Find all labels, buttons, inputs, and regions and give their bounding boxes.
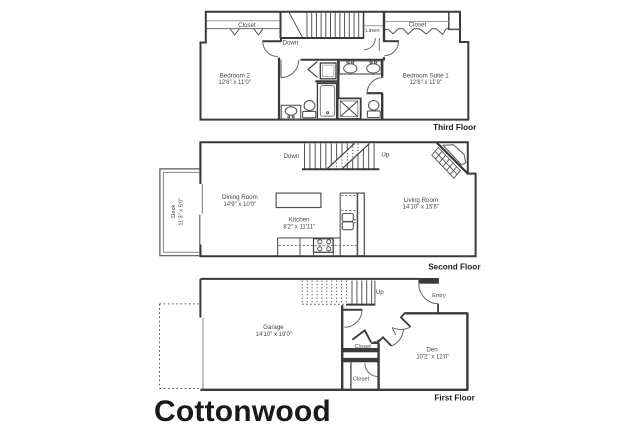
- svg-text:Bedroom 2: Bedroom 2: [220, 72, 251, 79]
- svg-text:11'3" x 5'0": 11'3" x 5'0": [178, 198, 184, 226]
- svg-text:8'2" x 11'11": 8'2" x 11'11": [283, 225, 315, 231]
- svg-text:Deck: Deck: [171, 205, 177, 218]
- svg-text:Closet: Closet: [353, 376, 370, 382]
- svg-text:Kitchen: Kitchen: [289, 216, 310, 223]
- svg-text:Dining Room: Dining Room: [222, 194, 258, 201]
- svg-text:Closet: Closet: [238, 22, 256, 29]
- svg-text:Living Room: Living Room: [404, 197, 438, 204]
- svg-text:Cottonwood: Cottonwood: [154, 395, 331, 426]
- svg-text:Second Floor: Second Floor: [428, 263, 481, 272]
- svg-text:14'9" x 10'0": 14'9" x 10'0": [223, 202, 256, 208]
- svg-text:14'10" x 15'6": 14'10" x 15'6": [403, 205, 439, 211]
- svg-text:Closet: Closet: [354, 344, 371, 350]
- svg-text:Garage: Garage: [263, 324, 284, 331]
- svg-text:14'10" x 19'0": 14'10" x 19'0": [256, 332, 292, 338]
- svg-text:10'2" x 12'0": 10'2" x 12'0": [416, 355, 449, 361]
- svg-text:Up: Up: [381, 152, 389, 159]
- svg-text:12'6" x 11'9": 12'6" x 11'9": [409, 80, 441, 86]
- svg-text:Den: Den: [426, 347, 438, 354]
- svg-text:Up: Up: [376, 289, 384, 296]
- svg-text:12'6" x 11'0": 12'6" x 11'0": [218, 80, 250, 86]
- svg-text:First Floor: First Floor: [434, 394, 475, 403]
- svg-text:Third Floor: Third Floor: [433, 123, 477, 132]
- svg-text:Linen: Linen: [365, 28, 379, 34]
- svg-text:Down: Down: [283, 153, 299, 160]
- svg-text:Down: Down: [282, 40, 298, 47]
- svg-text:Bedroom Suite 1: Bedroom Suite 1: [403, 73, 450, 80]
- svg-text:Closet: Closet: [409, 22, 427, 29]
- svg-text:Entry: Entry: [432, 293, 446, 299]
